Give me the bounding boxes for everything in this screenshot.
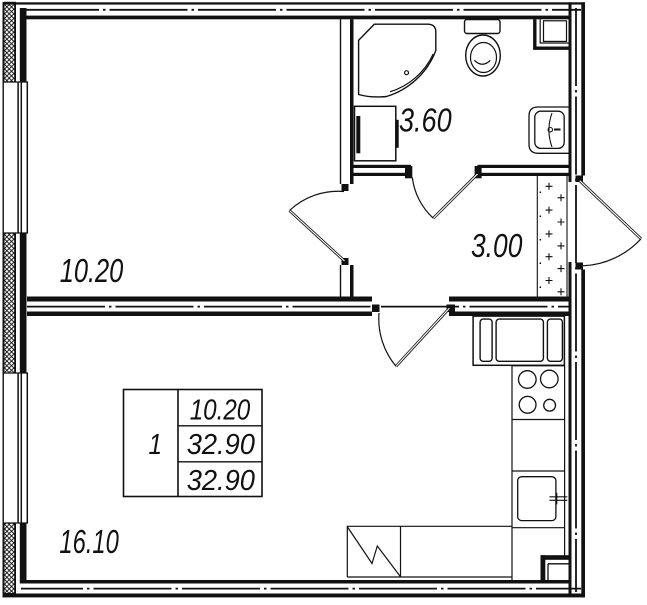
svg-text:10.20: 10.20 (190, 394, 251, 427)
svg-text:1: 1 (149, 428, 163, 460)
svg-text:10.20: 10.20 (60, 253, 124, 290)
svg-text:16.10: 16.10 (59, 524, 118, 561)
svg-text:32.90: 32.90 (187, 464, 256, 496)
svg-text:3.00: 3.00 (471, 228, 523, 264)
svg-text:3.60: 3.60 (399, 103, 452, 139)
svg-text:32.90: 32.90 (187, 428, 256, 460)
